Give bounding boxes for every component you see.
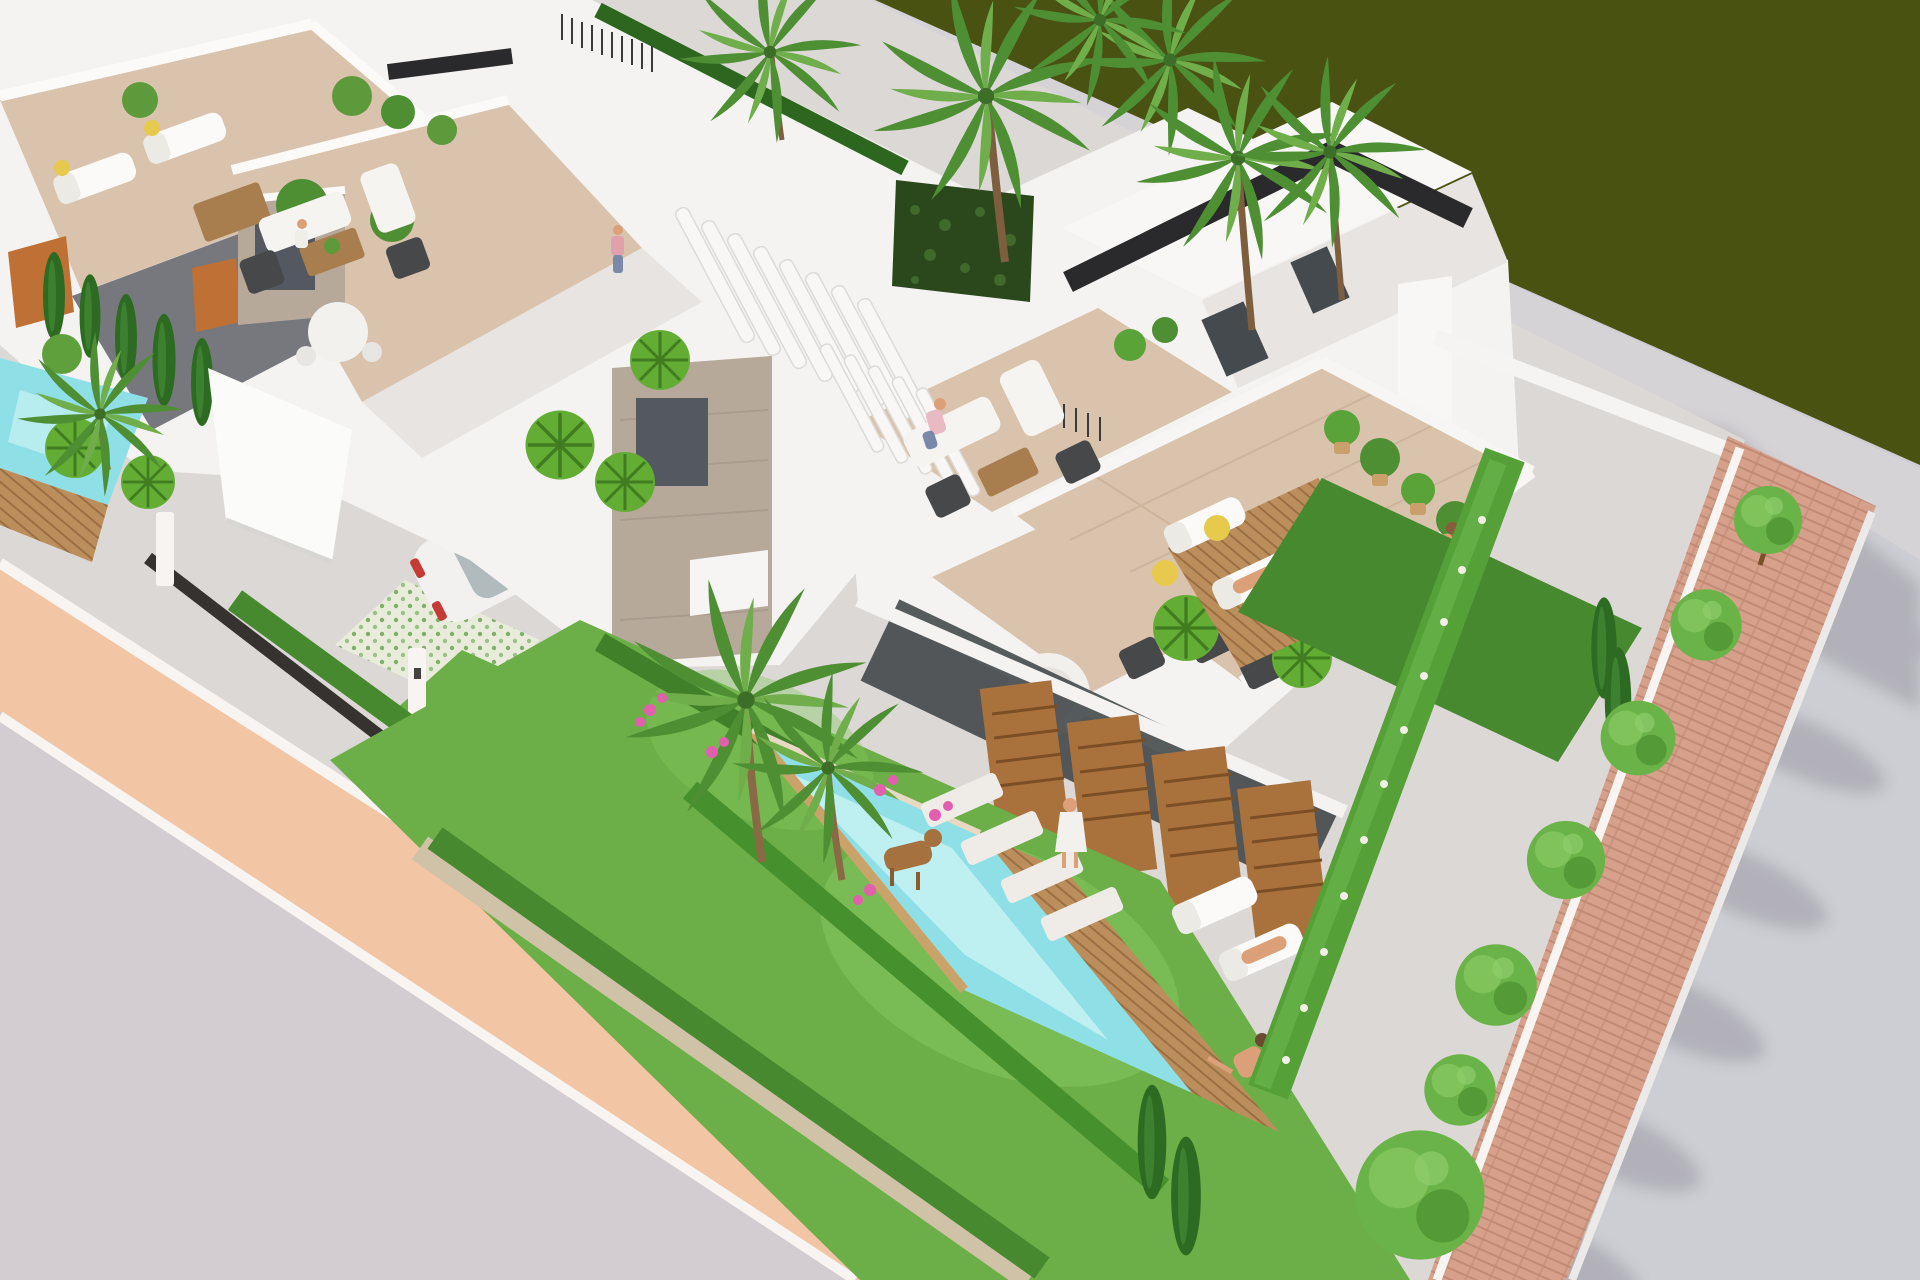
- terracotta-window-slats-2: [192, 258, 240, 332]
- chimney-window: [690, 550, 768, 616]
- architectural-render: [0, 0, 1920, 1280]
- bush: [122, 82, 158, 118]
- parapet-bush: [332, 76, 372, 116]
- round-dining-table: [308, 302, 368, 362]
- yellow-deco-ball: [1152, 560, 1178, 586]
- yellow-deco-ball: [1204, 515, 1230, 541]
- gate-post-1: [156, 512, 174, 586]
- yellow-pillow: [54, 160, 70, 176]
- vertical-garden-wall: [892, 180, 1034, 302]
- yellow-pillow: [144, 120, 160, 136]
- parapet-bush: [427, 115, 457, 145]
- render-canvas: [0, 0, 1920, 1280]
- table-plant: [324, 238, 340, 254]
- parapet-bush: [381, 95, 415, 129]
- house-number-plate: [414, 668, 421, 679]
- chair: [296, 346, 316, 366]
- child-dress: [1055, 812, 1087, 852]
- chair: [362, 342, 382, 362]
